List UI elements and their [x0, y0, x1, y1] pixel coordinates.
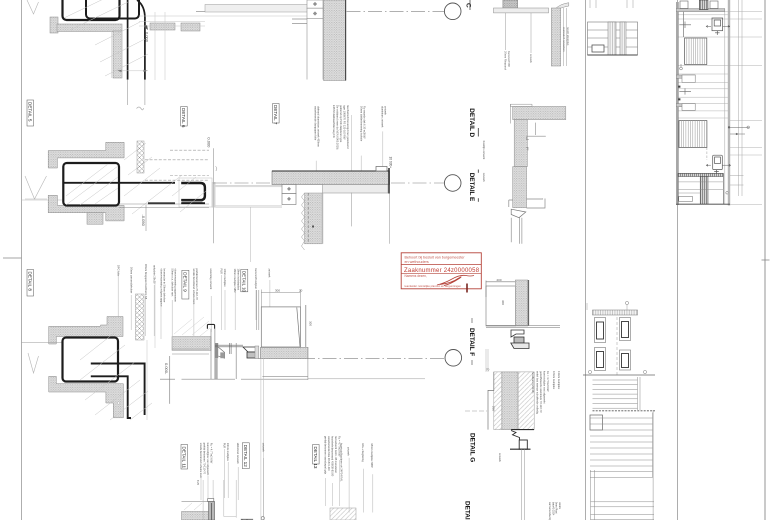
- svg-text:18mm multiplex MBP: 18mm multiplex MBP: [370, 443, 374, 468]
- svg-text:10mm multiplex: 10mm multiplex: [223, 269, 227, 288]
- svg-text:type 1066/76 PS 125-160 RW: type 1066/76 PS 125-160 RW: [343, 105, 347, 140]
- svg-text:DETAIL 5: DETAIL 5: [27, 102, 32, 122]
- svg-text:prefab betonnen 70-110-70: prefab betonnen 70-110-70: [195, 269, 199, 301]
- svg-text:Rc = 4.77m2 K/W: Rc = 4.77m2 K/W: [210, 443, 214, 464]
- svg-text:details: details: [558, 502, 561, 510]
- svg-text:DETAIL 9: DETAIL 9: [183, 272, 188, 292]
- svg-text:20mm Rhepanol: 20mm Rhepanol: [504, 51, 508, 70]
- svg-text:Rc-waarde dak 6.30 m2K/W: Rc-waarde dak 6.30 m2K/W: [363, 106, 367, 139]
- svg-text:metselwerk norm. 38 menuleren: metselwerk norm. 38 menuleren: [334, 436, 338, 474]
- svg-text:teamleider ruimtelijke plannen: teamleider ruimtelijke plannen en vergun…: [405, 284, 462, 288]
- svg-text:10mm multiplex: 10mm multiplex: [552, 371, 556, 390]
- svg-text:zetwerk: zetwerk: [267, 269, 271, 279]
- svg-text:50mm cementdekvloer: 50mm cementdekvloer: [130, 267, 134, 293]
- svg-text:gemoffeleerde aluminium 70-110: gemoffeleerde aluminium 70-110-70: [539, 371, 543, 413]
- svg-text:13mm multiplex: 13mm multiplex: [557, 371, 561, 390]
- svg-text:DETAIL 6: DETAIL 6: [181, 108, 186, 128]
- svg-text:dakrand aluminium zetwerk 450m: dakrand aluminium zetwerk 450mm: [317, 106, 321, 147]
- svg-text:260: 260: [492, 406, 496, 411]
- svg-text:sliklat/stel zetwerk: sliklat/stel zetwerk: [236, 443, 240, 465]
- svg-text:DETAIL D: DETAIL D: [468, 108, 475, 137]
- svg-text:300: 300: [501, 300, 505, 305]
- svg-text:0.000: 0.000: [144, 32, 149, 43]
- svg-text:DPC-folie: DPC-folie: [117, 265, 121, 277]
- svg-text:zetwerk: zetwerk: [498, 453, 502, 463]
- svg-text:DETAIL 7: DETAIL 7: [273, 105, 278, 125]
- svg-text:kunststof kozijnen wit 24F34 R: kunststof kozijnen wit 24F34 RAL: [339, 443, 343, 482]
- svg-text:zetwerk: zetwerk: [482, 173, 486, 183]
- svg-text:10mm multiplex: 10mm multiplex: [226, 443, 230, 462]
- svg-text:DETAIL 13: DETAIL 13: [313, 447, 318, 469]
- svg-text:waterslag zetwerk: waterslag zetwerk: [209, 269, 213, 290]
- svg-text:5mm Plaat: 5mm Plaat: [555, 502, 558, 514]
- svg-text:DETAIL: DETAIL: [464, 501, 471, 520]
- svg-text:Rc = 4.77m2 K/W: Rc = 4.77m2 K/W: [546, 371, 550, 392]
- svg-text:10 030+: 10 030+: [389, 157, 393, 169]
- svg-text:zetwerk: zetwerk: [261, 443, 265, 453]
- svg-text:EPDM dakbaanfolie laag FR: EPDM dakbaanfolie laag FR: [332, 105, 336, 138]
- svg-text:18mm isolatieplaat: 18mm isolatieplaat: [236, 269, 240, 291]
- svg-text:0.000: 0.000: [206, 137, 211, 148]
- svg-text:kunststofglas vast afgewerkt: kunststofglas vast afgewerkt: [206, 443, 210, 476]
- svg-text:Namens dezen,: Namens dezen,: [405, 274, 427, 278]
- svg-text:DETAIL 10: DETAIL 10: [241, 271, 246, 293]
- svg-text:DETAIL 11: DETAIL 11: [181, 447, 186, 469]
- svg-text:aannemersbedrijf: aannemersbedrijf: [548, 502, 551, 520]
- svg-text:300: 300: [275, 288, 280, 292]
- svg-text:DETAIL F: DETAIL F: [468, 328, 475, 356]
- svg-text:geklemd op PUR dakplaten type: geklemd op PUR dakplaten type: [339, 105, 343, 143]
- svg-text:Kunststof 580: Kunststof 580: [507, 51, 511, 67]
- svg-text:leverancier in 50mm dekvloer: leverancier in 50mm dekvloer: [162, 269, 166, 303]
- svg-text:8 25: 8 25: [196, 480, 200, 486]
- svg-text:DETAIL 12: DETAIL 12: [243, 445, 248, 467]
- svg-text:enkel laat meeuw schuifende vo: enkel laat meeuw schuifende volledig: [536, 371, 540, 415]
- svg-text:prefab betonnen raamdorpel gri: prefab betonnen raamdorpel grijs: [324, 436, 328, 475]
- svg-text:200: 200: [497, 278, 502, 282]
- svg-text:kunststofglas vast afgewerkt: kunststofglas vast afgewerkt: [543, 371, 547, 404]
- svg-text:waterkerende folie 90-83 LDO: waterkerende folie 90-83 LDO: [327, 436, 331, 471]
- svg-text:-0.050: -0.050: [141, 215, 146, 227]
- svg-text:zetwerk: zetwerk: [529, 54, 533, 64]
- svg-text:De volobond veen da NEN 6063:2: De volobond veen da NEN 6063:2019j: [336, 105, 340, 150]
- svg-text:DETAIL 8: DETAIL 8: [27, 272, 32, 292]
- svg-text:en wethouders: en wethouders: [405, 260, 429, 264]
- svg-text:HR++ beglazing: HR++ beglazing: [361, 443, 365, 462]
- svg-text:zetwerk: zetwerk: [384, 106, 388, 116]
- svg-text:vloerverwarming opgenomen: vloerverwarming opgenomen: [173, 269, 177, 303]
- svg-text:PUR: PUR: [220, 269, 224, 275]
- svg-text:DETAIL G: DETAIL G: [468, 433, 475, 462]
- svg-text:renolit alkorplan: renolit alkorplan: [566, 27, 570, 46]
- svg-text:Behoort bij besluit van burgem: Behoort bij besluit van burgemeester: [405, 256, 466, 260]
- svg-text:overstek 8 zetwerken: overstek 8 zetwerken: [562, 27, 566, 52]
- svg-text:DETAIL E: DETAIL E: [468, 173, 475, 202]
- svg-text:anhydriet 28x38: anhydriet 28x38: [153, 265, 157, 284]
- svg-text:bata45 2024: bata45 2024: [551, 502, 554, 516]
- svg-text:PUR: PUR: [223, 443, 227, 449]
- svg-text:hotelband (24F34): hotelband (24F34): [531, 372, 535, 393]
- svg-text:smalle betonrand schuine kant: smalle betonrand schuine kant: [199, 443, 203, 478]
- svg-text:prefab betonnen 70-110-70: prefab betonnen 70-110-70: [203, 443, 207, 475]
- svg-text:hoeklijn zetwerk: hoeklijn zetwerk: [482, 141, 486, 160]
- svg-text:0.000-: 0.000-: [164, 363, 169, 375]
- svg-text:C: C: [465, 3, 472, 8]
- svg-text:houtskeletbouwwand 436/38-83.8: houtskeletbouwwand 436/38-83.80: [331, 436, 335, 477]
- svg-text:300: 300: [309, 321, 313, 326]
- svg-text:Zaaknummer 24z0000058: Zaaknummer 24z0000058: [404, 268, 480, 274]
- svg-text:20: 20: [299, 288, 303, 292]
- svg-text:90mm Kingspan Kooltherm K8: 90mm Kingspan Kooltherm K8: [144, 264, 148, 300]
- svg-text:mechanisch bevestigd met geiso: mechanisch bevestigd met geisoleerd: [346, 105, 350, 149]
- svg-text:kunststof kozijnen: kunststof kozijnen: [254, 269, 258, 290]
- svg-text:zetwerk: zetwerk: [347, 447, 351, 457]
